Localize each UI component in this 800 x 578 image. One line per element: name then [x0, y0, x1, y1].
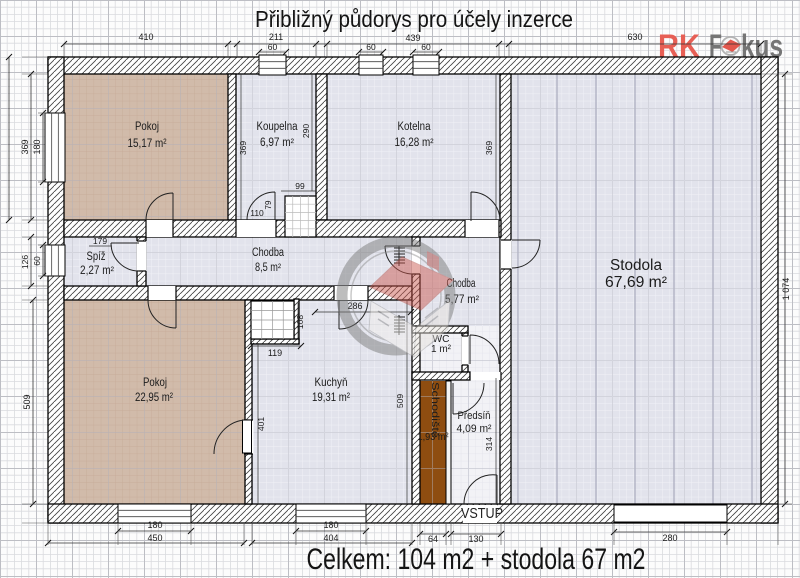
svg-text:60: 60	[421, 42, 431, 52]
svg-text:290: 290	[301, 124, 311, 138]
svg-text:Chodba: Chodba	[252, 247, 284, 259]
svg-text:179: 179	[93, 236, 107, 246]
svg-text:2,27 m²: 2,27 m²	[80, 265, 114, 277]
svg-text:126: 126	[20, 255, 30, 269]
svg-text:6,97 m²: 6,97 m²	[260, 137, 294, 149]
svg-text:404: 404	[323, 533, 338, 543]
svg-text:Stodola: Stodola	[610, 257, 662, 274]
svg-text:Koupelna: Koupelna	[257, 121, 299, 133]
svg-text:108: 108	[295, 315, 305, 329]
svg-text:509: 509	[395, 394, 405, 408]
svg-text:410: 410	[138, 32, 153, 42]
svg-text:VSTUP: VSTUP	[461, 505, 503, 522]
svg-text:180: 180	[32, 139, 42, 154]
svg-text:4,09 m²: 4,09 m²	[457, 423, 492, 435]
svg-text:314: 314	[484, 437, 494, 451]
svg-text:110: 110	[250, 208, 264, 218]
svg-text:369: 369	[484, 141, 494, 155]
svg-text:Spíž: Spíž	[87, 251, 106, 263]
svg-text:15,17 m²: 15,17 m²	[128, 136, 167, 150]
svg-text:Předsíň: Předsíň	[458, 410, 491, 422]
svg-text:450: 450	[147, 533, 162, 543]
svg-text:401: 401	[256, 417, 266, 431]
svg-text:130: 130	[468, 534, 483, 544]
svg-text:Celkem: 104 m2 + stodola 67 m2: Celkem: 104 m2 + stodola 67 m2	[307, 543, 646, 576]
svg-text:79: 79	[264, 200, 273, 209]
svg-text:211: 211	[269, 32, 283, 42]
svg-text:180: 180	[323, 520, 338, 530]
svg-text:1 074: 1 074	[781, 278, 791, 301]
svg-text:19,31 m²: 19,31 m²	[312, 390, 350, 404]
svg-text:280: 280	[662, 533, 677, 543]
svg-text:509: 509	[22, 394, 32, 409]
svg-text:119: 119	[268, 348, 282, 358]
svg-text:Kuchyň: Kuchyň	[315, 375, 348, 389]
svg-text:369: 369	[238, 141, 248, 155]
svg-text:630: 630	[627, 32, 642, 42]
svg-text:64: 64	[428, 534, 438, 544]
svg-text:Přibližný půdorys pro účely in: Přibližný půdorys pro účely inzerce	[255, 6, 573, 32]
svg-text:Pokoj: Pokoj	[143, 375, 167, 389]
svg-text:16,28 m²: 16,28 m²	[395, 137, 434, 149]
svg-text:60: 60	[32, 256, 42, 266]
svg-text:22,95 m²: 22,95 m²	[135, 390, 173, 404]
svg-text:369: 369	[20, 139, 30, 154]
svg-text:Kotelna: Kotelna	[398, 121, 432, 133]
svg-text:Schodiště: Schodiště	[429, 382, 441, 438]
svg-text:1,93 m²: 1,93 m²	[418, 431, 449, 443]
svg-text:67,69 m²: 67,69 m²	[605, 274, 667, 291]
svg-text:99: 99	[295, 181, 305, 191]
svg-text:60: 60	[366, 42, 376, 52]
svg-text:286: 286	[347, 301, 362, 311]
svg-text:8,5 m²: 8,5 m²	[255, 262, 281, 274]
svg-text:Pokoj: Pokoj	[135, 119, 159, 133]
svg-text:439: 439	[405, 33, 420, 43]
svg-text:180: 180	[147, 520, 162, 530]
svg-text:60: 60	[268, 42, 278, 52]
svg-text:1 m²: 1 m²	[431, 343, 451, 355]
